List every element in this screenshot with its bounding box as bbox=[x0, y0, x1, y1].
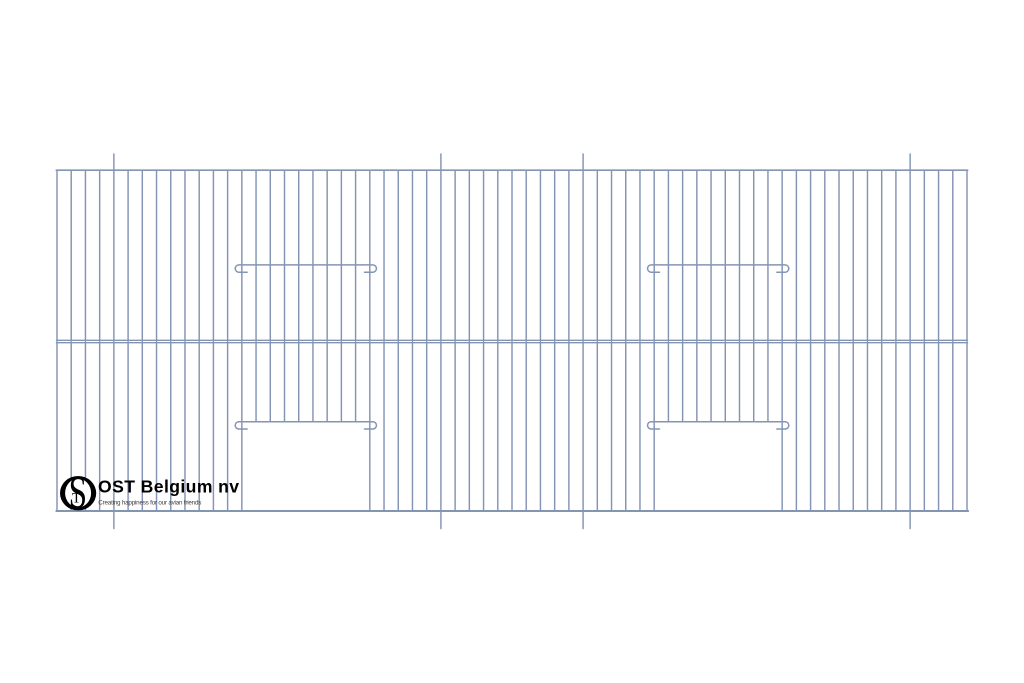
svg-text:OST Belgium nv: OST Belgium nv bbox=[98, 477, 239, 497]
svg-text:T: T bbox=[72, 490, 81, 506]
svg-text:Creating happiness for our avi: Creating happiness for our avian friends bbox=[98, 500, 201, 507]
